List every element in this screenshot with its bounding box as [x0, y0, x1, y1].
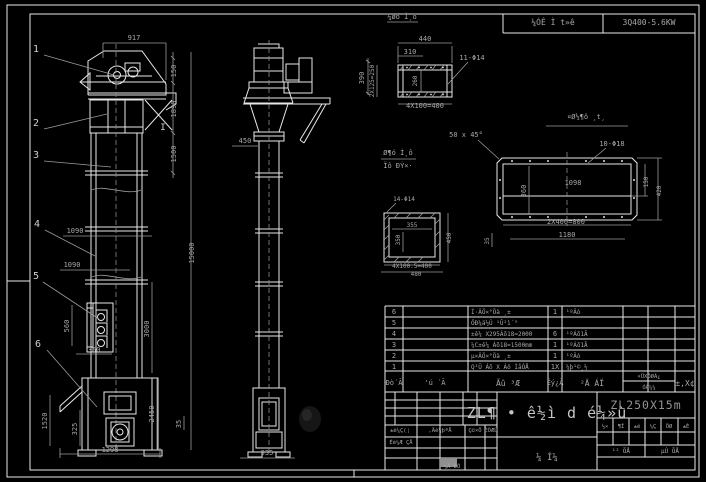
dim-325: 325	[71, 423, 79, 436]
balloon-numbers: 1 2 3 4 5 6 I	[33, 44, 166, 350]
channel-holes-label: 11-Φ14	[459, 54, 484, 62]
channel-dim-310: 310	[404, 48, 417, 56]
stage-cell: ½×	[602, 423, 609, 430]
product-title: ZL¶ • ê½ì d é¼»ù	[467, 404, 628, 422]
dim-1090-a: 1090	[67, 227, 84, 235]
dim-35: 35	[175, 420, 183, 428]
section-mark: I	[160, 123, 165, 133]
stage-cell: ±ê	[634, 423, 641, 430]
title-block-texts: ZL¶ • ê½ì d é¼»ù ZL250X15m ±ê¼Ç(¦ ,Äê¼þº…	[389, 398, 689, 470]
detail-square-flange	[384, 213, 440, 262]
channel-dim-bottom: 4X100=400	[406, 102, 444, 110]
bom-header-remark: ±,X¢	[675, 379, 694, 388]
rev-label-date: ÈÕÆÚ	[484, 426, 497, 434]
bom-qty: 1	[553, 308, 557, 316]
dim-1090-b: 1090	[64, 261, 81, 269]
balloon-6: 6	[35, 339, 41, 350]
dim-560: 560	[63, 320, 71, 333]
bom-no: 4	[392, 330, 396, 338]
dim-150: 150	[170, 65, 178, 78]
dim-360: 360	[88, 346, 101, 354]
balloon-2: 2	[33, 118, 39, 129]
stage-cell: ±È	[683, 422, 690, 430]
side-view	[243, 40, 330, 457]
bom-name: µ×ÂÖ×°Öà ¸±	[471, 353, 511, 360]
bom-mat: ¼þ¹©¸½	[566, 364, 588, 371]
bom-qty: 6	[553, 330, 557, 338]
flange-chamfer-label: 50 x 45°	[449, 131, 483, 139]
bom-mat: ¹ºÁõ1Ã	[566, 331, 588, 338]
balloon-5: 5	[33, 271, 39, 282]
detail-long-flange	[497, 152, 637, 226]
bom-header-weight-sub: ÓÃ¼¼	[642, 384, 655, 391]
channel-detail-texts: ¼øó Ì¸ô 440 310 2X125=250 260 11-Φ14 4X1…	[369, 12, 485, 110]
dim-917: 917	[128, 34, 141, 42]
bom-no: 5	[392, 319, 396, 327]
bom-name: ¼C±ê¼ Áõ18=1500mm	[471, 342, 533, 349]
strip-cell-left: ¼ÓÊ Ì t»ê	[531, 16, 575, 27]
dim-935: 935	[261, 449, 274, 457]
smudge-artifact	[299, 406, 321, 432]
flange-holes-label: 10-Φ18	[599, 140, 624, 148]
channel-dim-440: 440	[419, 35, 432, 43]
square-title-1: Ø¶ó Ì¸ô	[383, 148, 413, 157]
bom-header-name: Ãû ³Æ	[496, 378, 520, 388]
bom-header-no: Ðò´Ã	[386, 378, 404, 387]
dim-1500: 1500	[170, 146, 178, 163]
bom-header-code: 'ú ´Ã	[424, 378, 446, 387]
dim-1298: 1298	[102, 446, 119, 454]
flange-dim-360: 360	[520, 185, 528, 198]
bom-header-qty: Êý¿Ã	[547, 378, 565, 387]
bom-name: Í·ÂÖ×°Öà ¸±	[471, 308, 511, 316]
flange-dim-800: 2X400=800	[547, 218, 585, 226]
bom-qty: 1X	[551, 363, 560, 371]
balloon-1: 1	[33, 44, 39, 55]
stage-cell: ¶Î	[618, 423, 625, 430]
channel-title: ¼øó Ì¸ô	[387, 12, 417, 21]
bom-qty: 1	[553, 352, 557, 360]
channel-dim-inner: 260	[412, 75, 419, 86]
square-dim-480: 480	[411, 271, 422, 278]
square-title-2: Ïô ÐÝ×·	[383, 161, 413, 170]
cad-drawing-canvas[interactable]: ¼ÓÊ Ì t»ê 3Q400-5.6KW	[0, 0, 706, 482]
bom-header-mat: ²Ä ÁÏ	[580, 377, 604, 388]
design-label: Éè¼Æ ÇÅ	[389, 438, 413, 446]
bom-no: 3	[392, 341, 396, 349]
detail-channel-section	[398, 65, 452, 97]
bom-name: Q¹Ü Áõ X Áô ÌåÓÅ	[471, 364, 529, 371]
flange-dim-1098: 1098	[565, 179, 582, 187]
square-dim-450: 450	[446, 232, 453, 243]
flange-dim-1180: 1180	[559, 231, 576, 239]
bom-no: 6	[392, 308, 396, 316]
stage-cell: ¼Ç	[650, 424, 657, 430]
drawing-sheet: ¼ÓÊ Ì t»ê 3Q400-5.6KW	[0, 0, 706, 482]
flange-dim-150: 150	[643, 176, 650, 187]
bom-no: 2	[392, 352, 396, 360]
balloon-4: 4	[34, 219, 40, 230]
dim-450: 450	[239, 137, 252, 145]
bom-mat: ¹ºÂò	[566, 353, 581, 360]
stage-cell: ÖØ	[666, 423, 673, 430]
model-number: ZL250X15m	[610, 398, 681, 412]
sheet-number: µÚ ÕÅ	[661, 448, 679, 455]
dim-3000: 3000	[143, 321, 151, 338]
dim-2450: 2450	[148, 406, 156, 423]
bom-no: 1	[392, 363, 396, 371]
date-label: ¼Ä ÈÕ	[444, 462, 461, 470]
balloon-3: 3	[33, 150, 39, 161]
rev-label-sign: Ç©×Ö	[468, 427, 481, 434]
square-dim-350: 350	[395, 234, 402, 245]
square-holes-label: 14-Φ14	[393, 196, 415, 203]
bom-name: ÖÐ¼ä½Ú ¹Û²ì´°	[471, 320, 518, 327]
square-dim-400: 4X100.5=400	[392, 263, 432, 270]
bom-mat: ¹ºÁõ1Ã	[566, 342, 588, 349]
dim-15000: 15000	[188, 242, 196, 263]
bom-mat: ¹ºÂò	[566, 309, 581, 316]
bom-qty: 1	[553, 341, 557, 349]
bom-name: ±ê¼ X295Áõ18=2000	[471, 331, 533, 338]
sheet-total: ¹² ÕÅ	[612, 448, 630, 455]
flange-title: ¤Ø½¶ô ¸t¸	[567, 113, 605, 121]
flange-dim-420: 420	[656, 185, 663, 196]
flange-dim-35: 35	[484, 237, 491, 245]
dim-390: 390	[358, 72, 366, 85]
square-dim-355: 355	[407, 222, 418, 229]
strip-cell-model-power: 3Q400-5.6KW	[623, 18, 676, 27]
rev-label-mark: ±ê¼Ç(¦	[390, 427, 410, 434]
drawing-type: ¼ Í¼	[536, 451, 558, 463]
bom-header-weight: ×ÜXÖØÁ¿	[637, 373, 660, 380]
rev-label-file: ,Äê¼þºÅ	[428, 427, 452, 434]
dim-1520: 1520	[41, 413, 49, 430]
front-view	[60, 44, 176, 456]
dim-1890: 1890	[170, 101, 178, 118]
channel-dim-left: 2X125=250	[369, 64, 376, 97]
